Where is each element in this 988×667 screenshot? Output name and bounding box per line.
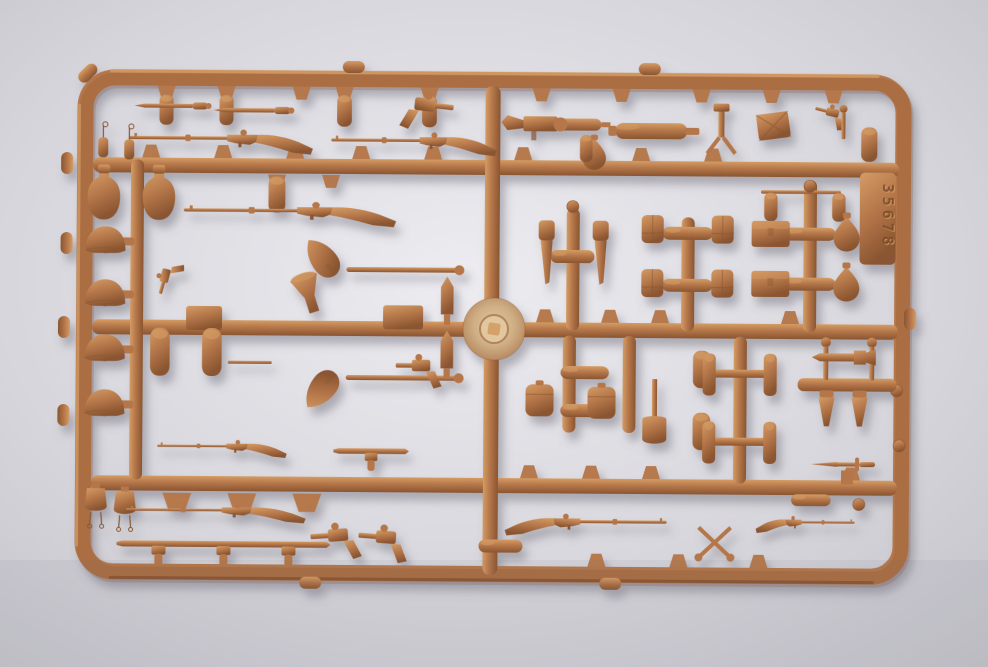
molding-block bbox=[383, 305, 423, 329]
mini-runner bbox=[622, 336, 636, 433]
sprue-stub bbox=[57, 404, 69, 426]
part-ammo-pouch bbox=[712, 216, 734, 244]
part-bottle bbox=[861, 127, 877, 162]
sprue-stub bbox=[61, 232, 73, 254]
part-bottle bbox=[580, 135, 593, 162]
part-bottle bbox=[764, 193, 777, 222]
part-cylinder bbox=[783, 228, 836, 241]
part-bottle bbox=[268, 176, 285, 212]
part-bottle bbox=[202, 328, 222, 376]
mini-runner bbox=[798, 378, 897, 392]
photo-lower-shade bbox=[0, 560, 988, 667]
injection-disc bbox=[463, 298, 525, 360]
part-mess-tin bbox=[525, 380, 553, 416]
mini-runner bbox=[803, 180, 817, 332]
sprue-stub bbox=[639, 63, 661, 75]
part-bottle bbox=[159, 95, 173, 125]
part-ammo-pouch bbox=[642, 215, 664, 243]
part-bottle bbox=[150, 328, 170, 376]
part-bottle bbox=[337, 95, 352, 127]
sprue-stub bbox=[58, 316, 70, 338]
part-map-case bbox=[756, 111, 791, 141]
molding-block bbox=[186, 306, 222, 330]
mini-runner bbox=[566, 209, 580, 331]
sprue-stub bbox=[61, 152, 73, 174]
part-tool bbox=[228, 361, 272, 364]
runner-inner-left bbox=[129, 159, 144, 479]
part-cylinder bbox=[550, 250, 594, 263]
part-cylinder bbox=[783, 278, 836, 291]
part-mess-tin bbox=[587, 383, 615, 419]
part-ammo-pouch bbox=[711, 270, 733, 298]
part-cylinder bbox=[478, 539, 522, 552]
part-cylinder bbox=[791, 494, 831, 506]
sprue-number: 35678 bbox=[879, 184, 897, 249]
sprue-number-tab: 35678 35678 bbox=[859, 173, 898, 265]
mini-runner bbox=[562, 335, 576, 432]
part-ammo-box bbox=[752, 221, 790, 247]
part-cylinder bbox=[662, 227, 713, 240]
model-kit-sprue-photo: 35678 35678 bbox=[0, 0, 988, 667]
part-cylinder bbox=[560, 366, 608, 379]
part-ammo-box bbox=[751, 271, 789, 297]
sprue-stub bbox=[893, 440, 905, 452]
part-ammo-pouch bbox=[641, 269, 663, 297]
part-cylinder bbox=[662, 279, 713, 292]
mini-runner bbox=[733, 337, 747, 484]
sprue-stub bbox=[343, 61, 365, 73]
sprue-stub bbox=[904, 308, 916, 330]
molding-block bbox=[841, 470, 853, 484]
sprue-scene: 35678 35678 bbox=[0, 0, 988, 667]
